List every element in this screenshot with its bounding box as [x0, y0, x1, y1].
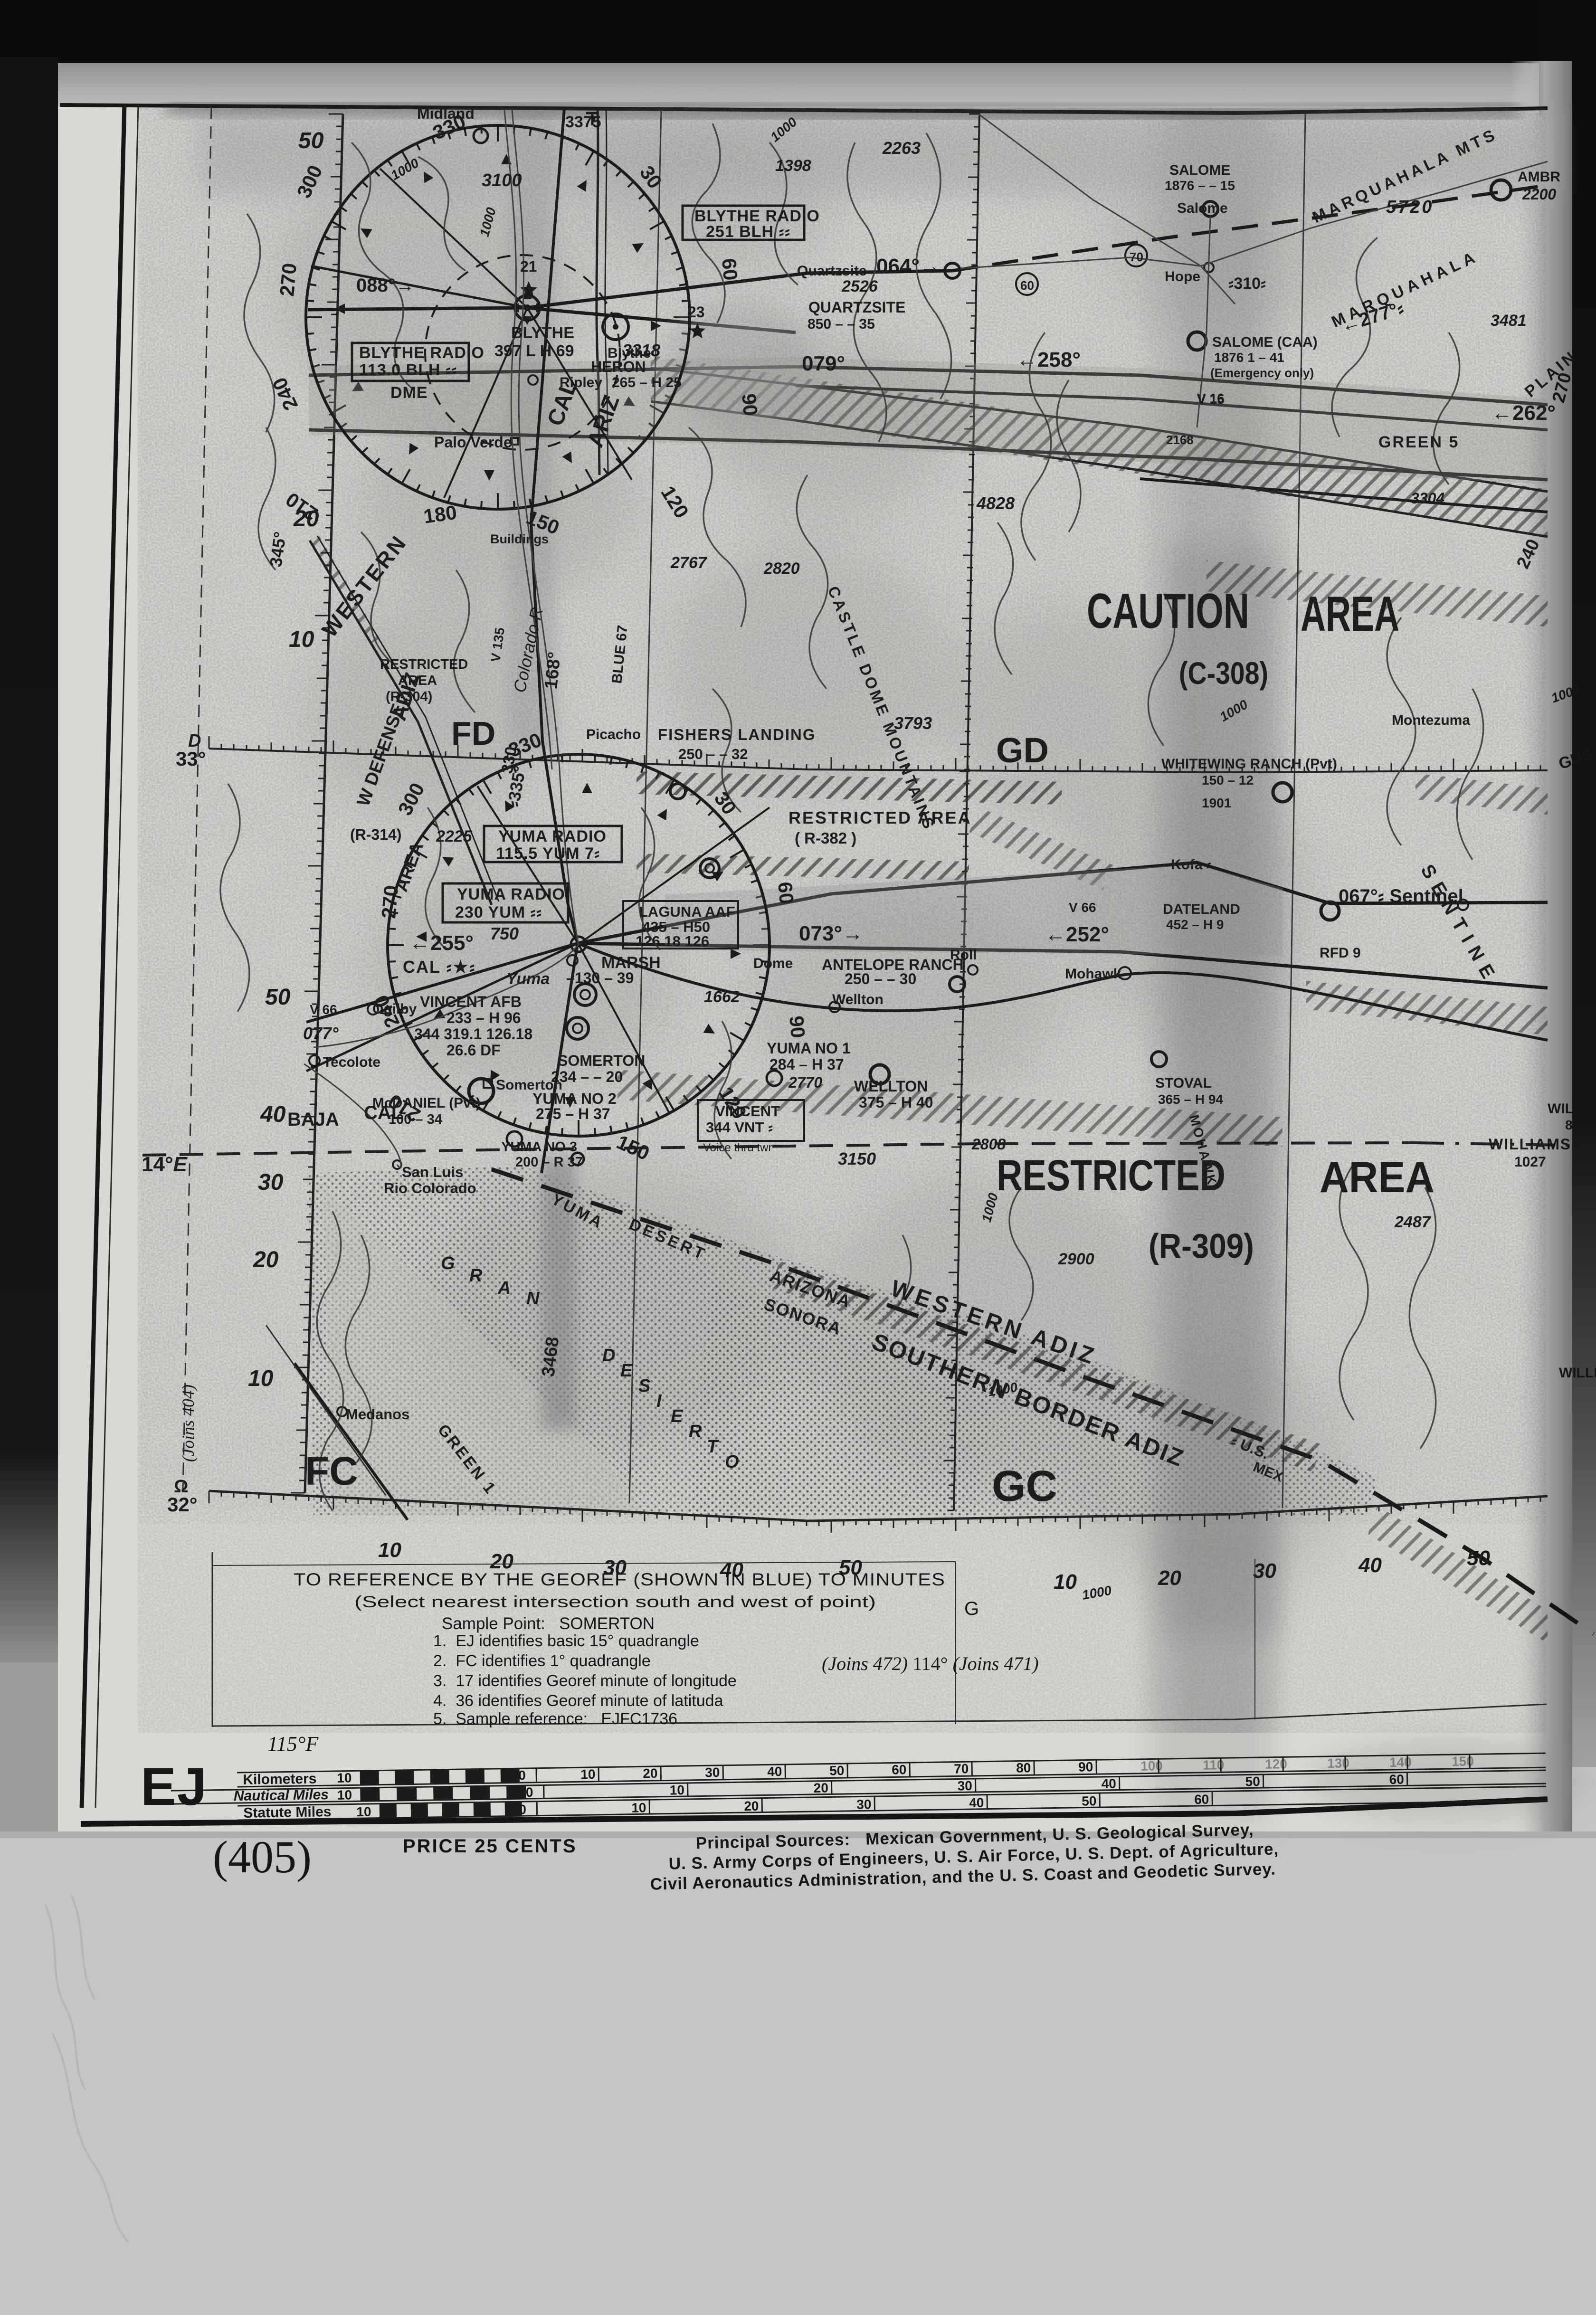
svg-text:40: 40	[1101, 1776, 1116, 1791]
svg-text:140: 140	[1389, 1755, 1412, 1770]
svg-text:10: 10	[670, 1783, 685, 1797]
svg-text:4. 36 identifies Georef minut: 4. 36 identifies Georef minute of latitu…	[433, 1692, 723, 1710]
svg-text:60: 60	[892, 1762, 907, 1777]
svg-text:WILLIAM: WILLIAM	[1548, 1101, 1596, 1117]
svg-text:Sample Point: SOMERTON: Sample Point: SOMERTON	[442, 1614, 655, 1633]
svg-text:60: 60	[1194, 1792, 1209, 1807]
svg-text:3. 17 identifies Georef minut: 3. 17 identifies Georef minute of longit…	[433, 1672, 737, 1690]
svg-text:30: 30	[856, 1797, 872, 1812]
svg-text:130: 130	[1327, 1755, 1349, 1771]
svg-text:40: 40	[969, 1795, 984, 1810]
svg-text:Kilometers: Kilometers	[243, 1771, 317, 1788]
svg-text:800: 800	[1565, 1118, 1587, 1132]
svg-text:90: 90	[1078, 1759, 1093, 1774]
svg-text:50: 50	[829, 1763, 845, 1778]
svg-text:60: 60	[1389, 1772, 1404, 1787]
svg-text:150: 150	[1452, 1754, 1474, 1769]
svg-text:G: G	[964, 1598, 979, 1619]
svg-text:50: 50	[1245, 1774, 1260, 1789]
svg-text:10: 10	[580, 1767, 596, 1782]
svg-text:WILLI: WILLI	[1559, 1365, 1596, 1381]
svg-text:30: 30	[705, 1765, 720, 1780]
svg-text:(Select nearest intersection s: (Select nearest intersection south and w…	[354, 1593, 876, 1611]
svg-text:10: 10	[356, 1804, 371, 1819]
svg-text:2. FC identifies 1° quadrangl: 2. FC identifies 1° quadrangle	[433, 1652, 651, 1670]
svg-text:0: 0	[519, 1802, 526, 1817]
svg-text:(Joins 472) 114° (Joins 471): (Joins 472) 114° (Joins 471)	[822, 1653, 1039, 1674]
svg-text:Nautical Miles: Nautical Miles	[234, 1787, 329, 1804]
svg-text:10: 10	[337, 1787, 352, 1802]
svg-text:110: 110	[1203, 1757, 1225, 1773]
svg-text:5. Sample reference: EJFC17: 5. Sample reference: EJFC1736	[433, 1710, 677, 1728]
svg-text:20: 20	[643, 1766, 658, 1781]
svg-text:70: 70	[954, 1761, 969, 1776]
svg-text:0: 0	[518, 1768, 526, 1783]
svg-text:TO REFERENCE BY THE GEOREF (SH: TO REFERENCE BY THE GEOREF (SHOWN IN BLU…	[294, 1570, 945, 1589]
svg-text:EJ: EJ	[141, 1757, 208, 1816]
svg-text:120: 120	[1265, 1756, 1287, 1772]
svg-text:0: 0	[526, 1785, 533, 1800]
svg-text:80: 80	[1016, 1760, 1031, 1775]
svg-text:PRICE 25 CENTS: PRICE 25 CENTS	[403, 1836, 577, 1857]
svg-text:30: 30	[957, 1778, 972, 1793]
svg-text:1. EJ identifies basic 15° qu: 1. EJ identifies basic 15° quadrangle	[433, 1632, 699, 1650]
svg-text:50: 50	[1082, 1793, 1097, 1808]
svg-text:10: 10	[337, 1770, 352, 1785]
svg-text:(405): (405)	[213, 1831, 312, 1882]
svg-text:10: 10	[631, 1800, 646, 1815]
svg-text:20: 20	[744, 1799, 759, 1813]
svg-text:115°F: 115°F	[267, 1732, 319, 1755]
svg-text:20: 20	[814, 1781, 829, 1795]
svg-text:Statute Miles: Statute Miles	[243, 1804, 332, 1821]
svg-text:40: 40	[767, 1764, 782, 1779]
svg-text:100: 100	[1140, 1758, 1163, 1774]
